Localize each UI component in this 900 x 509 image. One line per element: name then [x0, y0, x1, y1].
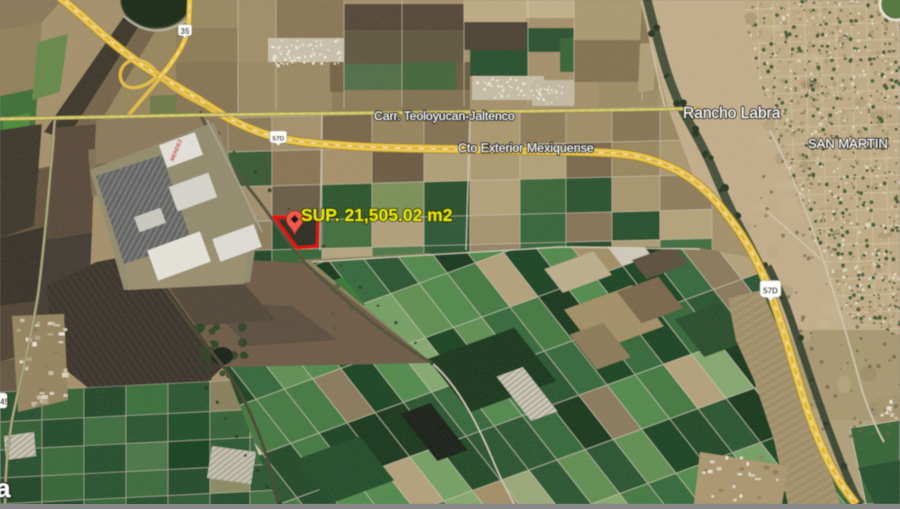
- svg-text:SUP. 21,505.02 m2: SUP. 21,505.02 m2: [301, 205, 453, 225]
- svg-text:SAN MARTIN: SAN MARTIN: [808, 136, 888, 151]
- svg-text:Cto Exterior Mexiquense: Cto Exterior Mexiquense: [458, 141, 594, 155]
- svg-text:a: a: [0, 473, 11, 503]
- svg-text:57D: 57D: [763, 287, 778, 296]
- svg-text:Carr. Teoloyucan-Jaltenco: Carr. Teoloyucan-Jaltenco: [374, 109, 515, 123]
- svg-text:Rancho Labra: Rancho Labra: [683, 105, 781, 122]
- svg-text:45: 45: [0, 398, 9, 407]
- svg-text:35: 35: [181, 27, 190, 36]
- svg-text:57D: 57D: [272, 136, 284, 143]
